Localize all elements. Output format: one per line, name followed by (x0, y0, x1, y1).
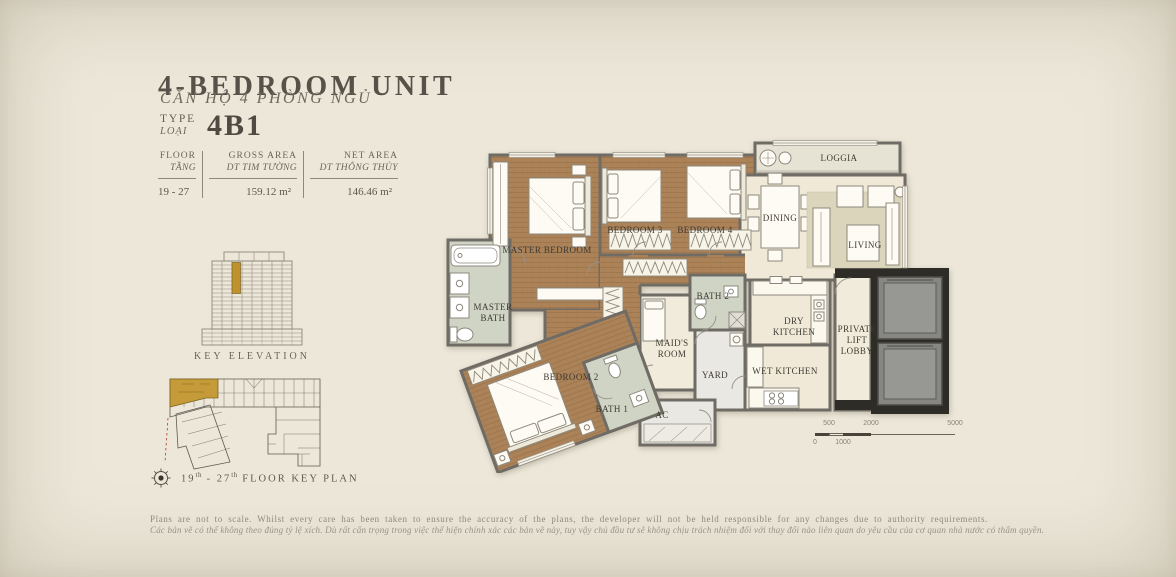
key-plan-caption-row: 19th - 27th FLOOR KEY PLAN (150, 467, 359, 489)
north-compass-icon (150, 467, 172, 489)
disclaimer-en: Plans are not to scale. Whilst every car… (150, 514, 1050, 524)
scale-label: 0 (813, 439, 817, 446)
scale-label: 1000 (835, 439, 851, 446)
room-label-private-lift-lobby: PRIVATE LIFT LOBBY (832, 324, 882, 356)
spec-header-vi: TẦNG (158, 163, 196, 175)
caption-part: FLOOR KEY PLAN (238, 474, 359, 485)
north-leader-line (165, 418, 168, 462)
scale-label: 2000 (863, 420, 879, 427)
unit-type-labels: TYPE LOẠI (160, 113, 196, 137)
key-plan-drawing (148, 374, 358, 470)
scale-label: 5000 (947, 420, 963, 427)
scale-bar: 500 2000 5000 0 1000 (810, 420, 970, 452)
spec-col-floor: FLOOR TẦNG 19 - 27 (158, 151, 202, 198)
caption-part: 19 (181, 474, 196, 485)
room-label-living: LIVING (833, 240, 897, 251)
room-label-dry-kitchen: DRY KITCHEN (765, 316, 823, 338)
spec-value-net-area: 146.46 m² (310, 179, 398, 198)
room-label-master-bedroom: MASTER BEDROOM (495, 245, 599, 256)
spec-header-en: GROSS AREA (209, 151, 297, 163)
spec-value-gross-area: 159.12 m² (209, 179, 297, 198)
room-label-wet-kitchen: WET KITCHEN (743, 366, 827, 377)
unit-type-value: 4B1 (207, 109, 263, 143)
room-label-ac: AC (638, 410, 686, 421)
type-label-vi: LOẠI (160, 126, 196, 138)
spec-header-vi: DT THÔNG THỦY (310, 163, 398, 175)
highlighted-floors (232, 263, 241, 294)
room-label-yard: YARD (691, 370, 739, 381)
type-label-en: TYPE (160, 113, 196, 126)
spec-value-floor: 19 - 27 (158, 179, 196, 198)
scale-label: 500 (823, 420, 835, 427)
room-label-bath-1: BATH 1 (582, 404, 642, 415)
key-elevation-drawing (200, 250, 304, 348)
room-label-loggia: LOGGIA (803, 153, 875, 164)
room-label-bedroom-2: BEDROOM 2 (528, 372, 614, 383)
room-label-maids-room: MAID'S ROOM (647, 338, 697, 360)
room-label-dining: DINING (748, 213, 812, 224)
spec-col-gross-area: GROSS AREA DT TIM TƯỜNG 159.12 m² (202, 151, 303, 198)
disclaimer-vi: Các bản vẽ có thể không theo đúng tỷ lệ … (150, 525, 1050, 535)
page-subtitle-vi: CĂN HỘ 4 PHÒNG NGỦ (160, 90, 372, 108)
spec-table: FLOOR TẦNG 19 - 27 GROSS AREA DT TIM TƯỜ… (158, 151, 404, 198)
spec-col-net-area: NET AREA DT THÔNG THỦY 146.46 m² (303, 151, 404, 198)
spec-header-vi: DT TIM TƯỜNG (209, 163, 297, 175)
key-plan-caption: 19th - 27th FLOOR KEY PLAN (181, 471, 359, 485)
spec-header-en: NET AREA (310, 151, 398, 163)
caption-part: - 27 (202, 474, 231, 485)
disclaimer: Plans are not to scale. Whilst every car… (150, 514, 1050, 535)
room-label-bath-2: BATH 2 (683, 291, 743, 302)
spec-header-en: FLOOR (158, 151, 196, 163)
room-label-master-bath: MASTER BATH (469, 302, 517, 324)
room-label-bedroom-4: BEDROOM 4 (663, 225, 747, 236)
key-elevation-caption: KEY ELEVATION (172, 351, 332, 362)
